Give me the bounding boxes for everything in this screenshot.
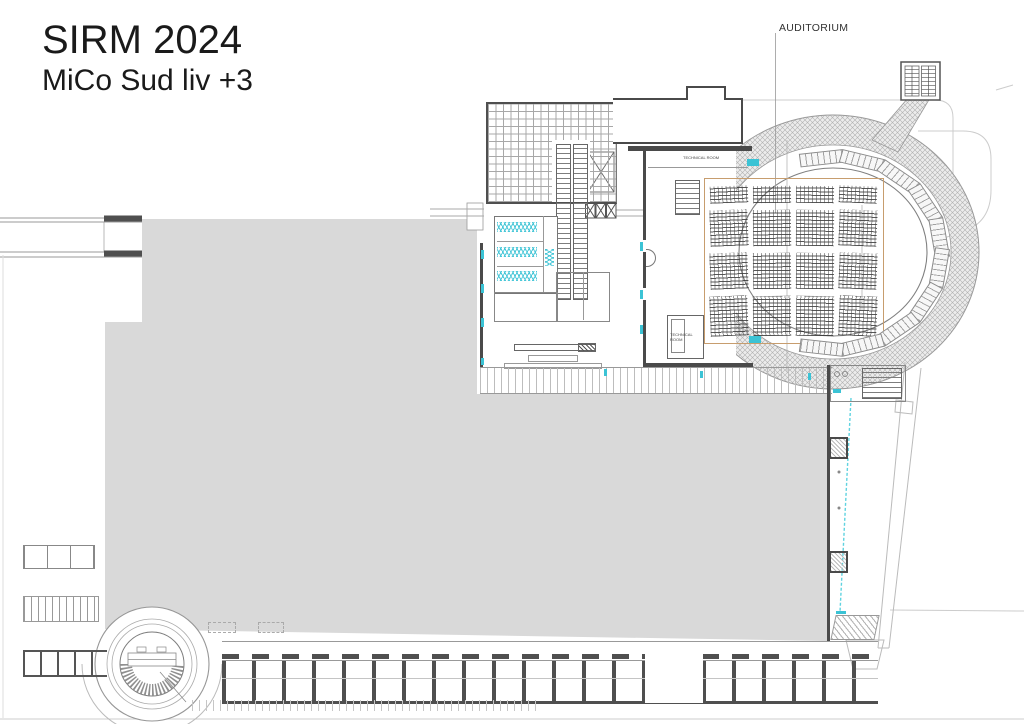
seat-block [709,209,748,247]
gallery-column [829,551,848,573]
toilet-door-zigzag [497,247,537,257]
auditorium-seating [704,178,884,344]
door-tick [604,369,607,376]
seat-block [753,186,791,204]
seat-block [838,295,878,337]
gallery-column [829,437,848,459]
ring-stair-accent [749,336,761,343]
elevator-bank [586,203,617,218]
auditorium-label: AUDITORIUM [779,22,848,34]
door-tick [481,284,484,293]
walkway-paving-band [480,367,832,394]
seat-block [796,296,835,337]
toilet-partition [543,216,544,292]
gallery-accent [836,611,846,614]
seat-block [796,210,834,247]
door-tick [808,373,811,380]
furniture-mark [208,622,236,633]
seat-block [796,186,834,204]
west-strip-b [23,596,99,622]
south-paving-ticks [192,700,540,711]
gallery-dot-1 [838,471,841,474]
seat-block [710,185,749,204]
seat-block [753,210,791,247]
technical-room-label-upper: TECHNICAL ROOM [683,155,719,160]
concourse-wall [480,243,483,368]
door-tick [640,325,643,334]
west-link-wall-cap-top [104,216,142,222]
gallery-accent [833,389,841,393]
seat-block [709,252,748,290]
seat-block [709,295,749,337]
upper-block-bump [686,86,726,100]
south-door-dashes [222,654,878,659]
toilet-door-zigzag [545,249,554,266]
seat-block [838,209,877,247]
toilet-door-zigzag [497,222,537,232]
gallery-glazing-line [840,398,851,612]
technical-room-label-lower: TECHNICAL ROOM [670,332,696,342]
seat-block [839,185,878,204]
concourse-room-b-divider [583,272,584,320]
external-stair-block [901,62,940,100]
wall-door-gap [643,288,646,300]
toilet-partition [497,266,543,267]
seat-block [838,252,877,290]
west-link-wall-cap-bottom [104,251,142,257]
seat-block [796,253,834,290]
gallery-ramp-hatch [830,615,879,640]
upper-block [613,98,743,144]
stage-stair [675,180,700,215]
seat-block [753,296,792,337]
door-tick [481,358,484,365]
south-room-midline [222,678,878,679]
auditorium-north-wall [628,146,752,151]
seat-block [753,253,791,290]
gallery-west-wall [827,365,830,642]
door-tick [640,242,643,251]
gallery-dot-2 [838,507,841,510]
door-tick [700,371,703,378]
door-tick [481,250,484,259]
south-corridor-line [222,641,878,642]
cloakroom-counter-hatch [578,343,596,352]
west-strip-a [23,545,95,569]
door-tick [481,318,484,327]
door-tick [640,290,643,299]
technical-room-strip-line [648,167,748,168]
west-strip-c [23,650,107,677]
page-title: SIRM 2024 [42,18,242,63]
floor-plan-canvas: SIRM 2024 MiCo Sud liv +3 AUDITORIUM TEC… [0,0,1024,724]
south-room-strip [222,660,878,704]
toilet-door-zigzag [497,271,537,281]
concourse-room-a [494,292,558,322]
ring-stair-accent [747,159,759,166]
counter-2 [528,355,578,362]
toilet-partition [497,241,543,242]
gallery-stair [862,368,902,399]
furniture-mark [258,622,284,633]
south-strip-gap [645,650,703,703]
page-subtitle: MiCo Sud liv +3 [42,64,253,98]
